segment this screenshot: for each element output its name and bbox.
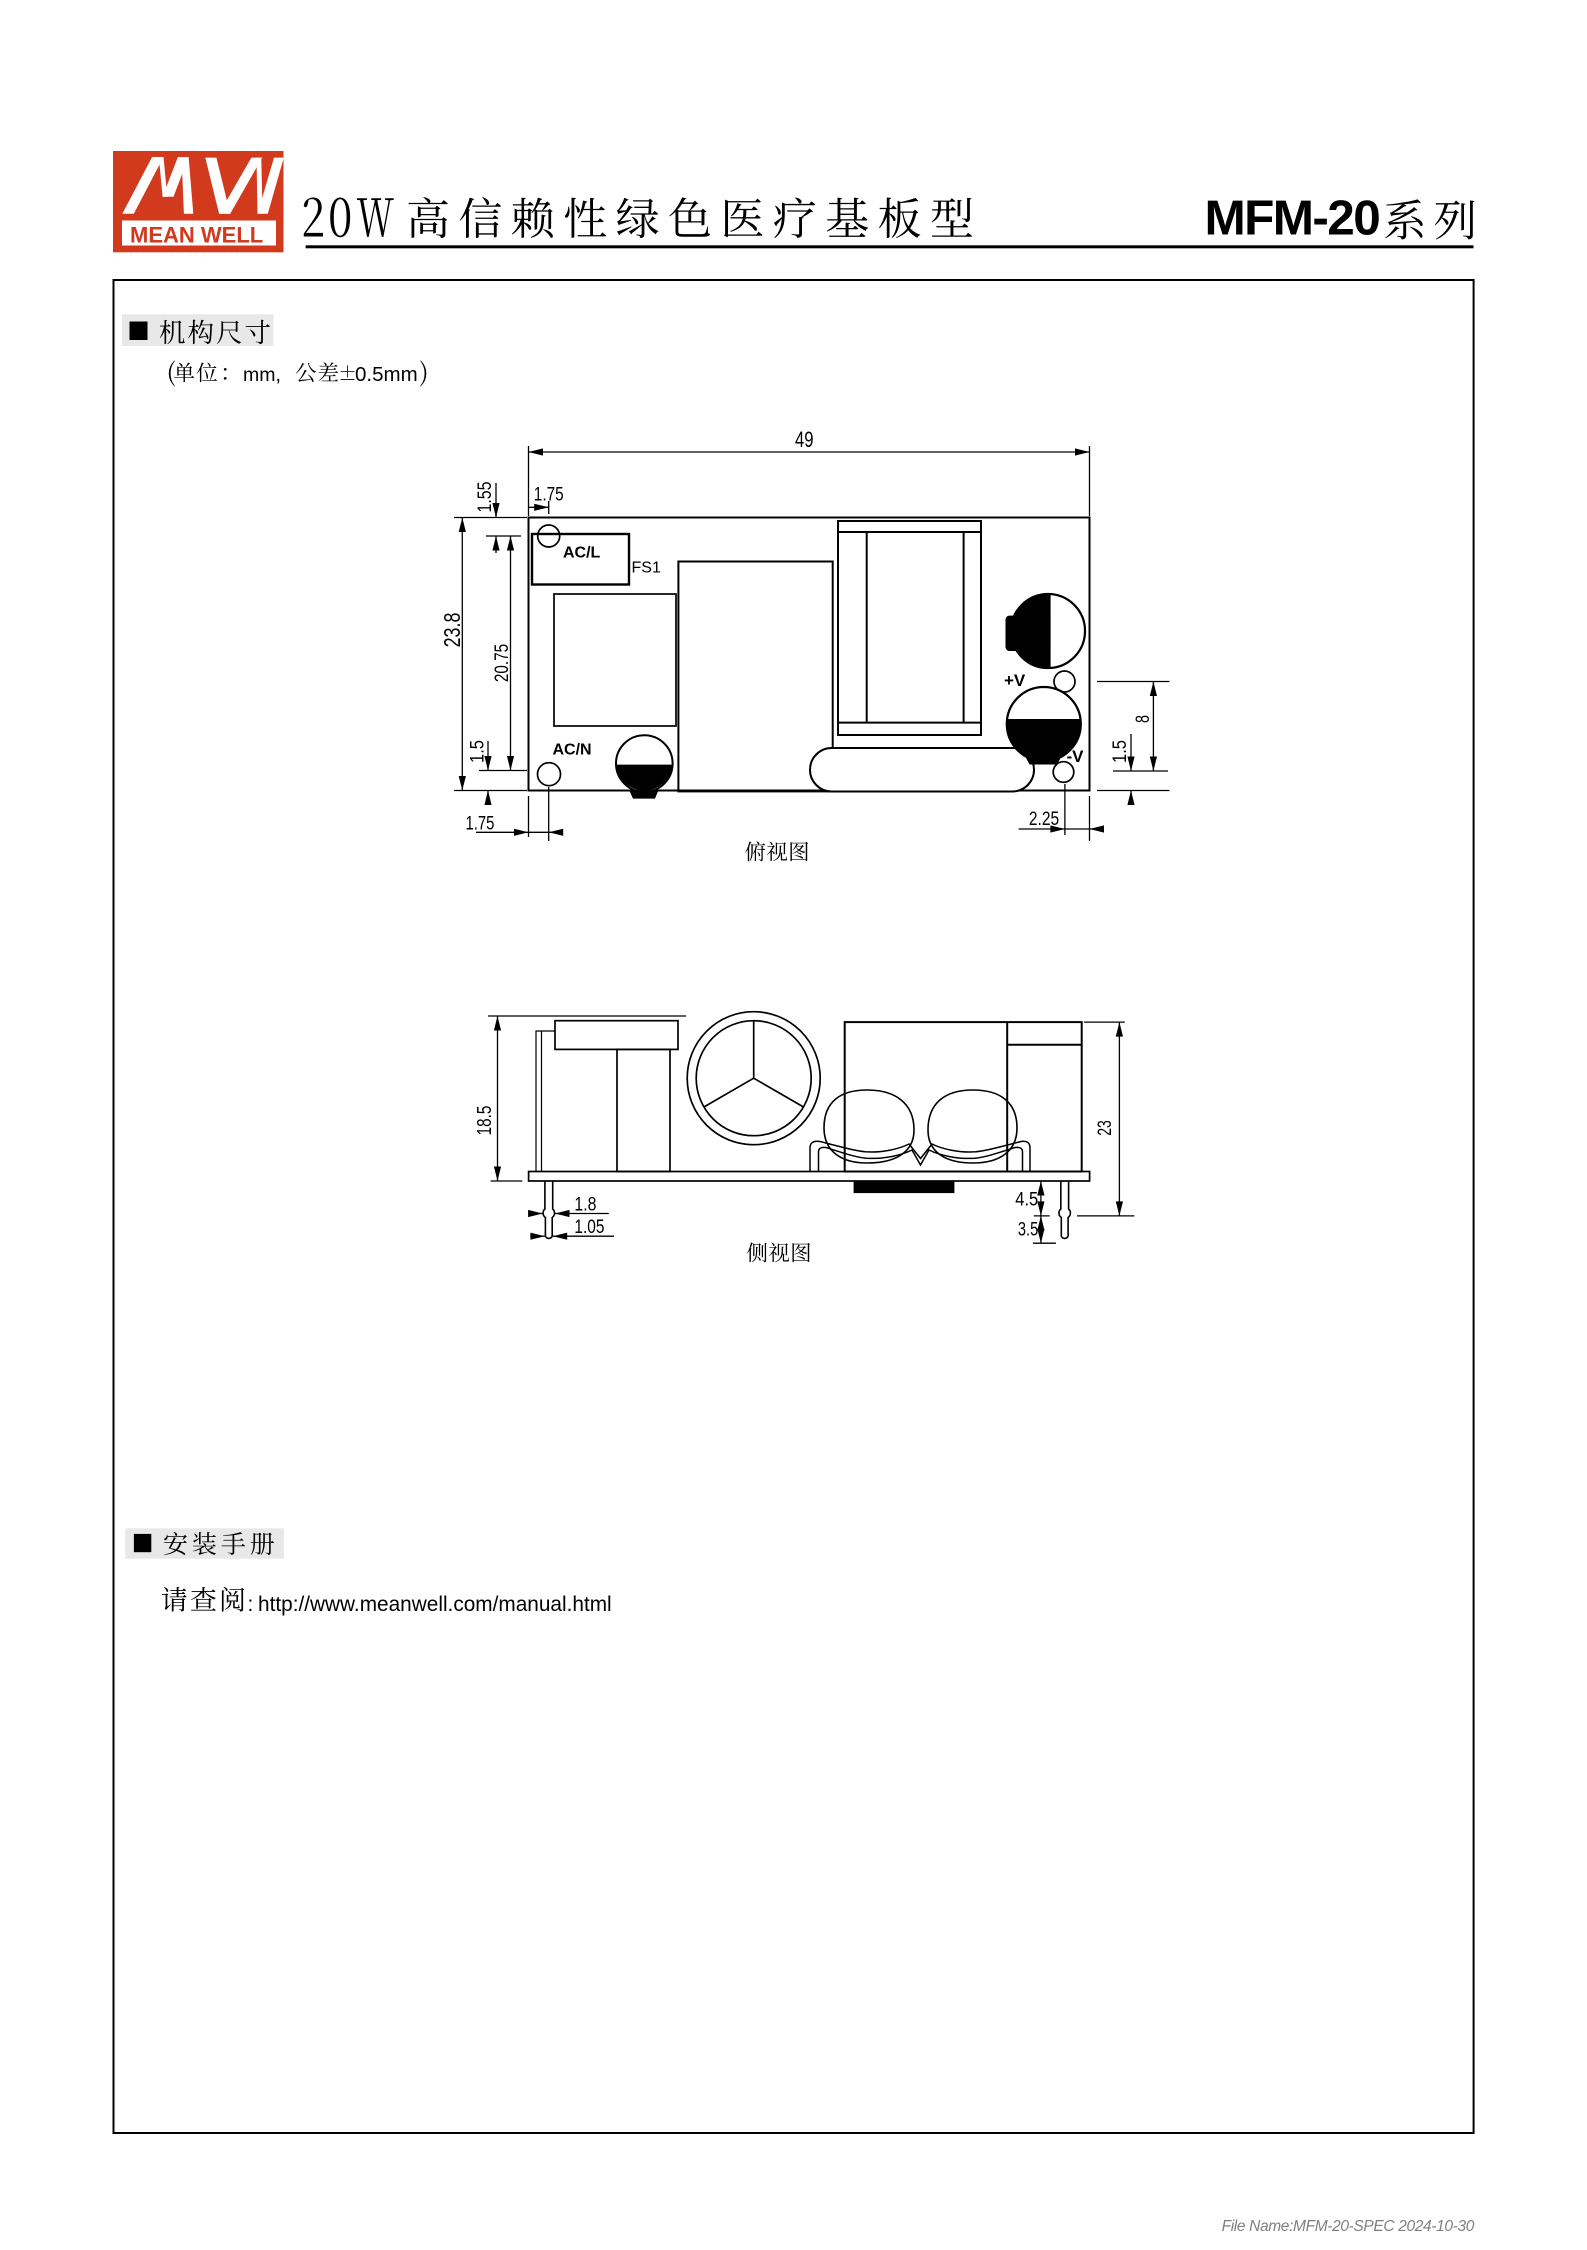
svg-text:MFM-20: MFM-20 bbox=[1205, 191, 1380, 246]
svg-text:AC/L: AC/L bbox=[563, 545, 601, 562]
svg-text:23.8: 23.8 bbox=[439, 613, 465, 648]
svg-text:File Name:MFM-20-SPEC 2024-10: File Name:MFM-20-SPEC 2024-10-30 bbox=[1222, 2218, 1475, 2235]
svg-text:20.75: 20.75 bbox=[491, 644, 513, 682]
svg-text:4.5: 4.5 bbox=[1015, 1188, 1038, 1210]
svg-text:mm,: mm, bbox=[243, 364, 281, 386]
svg-text:+V: +V bbox=[1004, 671, 1026, 690]
svg-text:2.25: 2.25 bbox=[1029, 808, 1059, 830]
svg-text:23: 23 bbox=[1095, 1120, 1116, 1136]
svg-text:MEAN WELL: MEAN WELL bbox=[130, 223, 263, 248]
svg-text:1.8: 1.8 bbox=[574, 1193, 596, 1215]
svg-text:http://www.meanwell.com/manual: http://www.meanwell.com/manual.html bbox=[258, 1593, 612, 1616]
svg-text:1.75: 1.75 bbox=[534, 484, 564, 506]
svg-text:49: 49 bbox=[795, 427, 814, 452]
svg-text:-V: -V bbox=[1067, 747, 1085, 766]
svg-text:3.5: 3.5 bbox=[1018, 1218, 1038, 1240]
svg-text:8: 8 bbox=[1132, 715, 1154, 723]
svg-text:18.5: 18.5 bbox=[474, 1106, 496, 1136]
svg-text::: : bbox=[248, 1593, 254, 1616]
svg-text:1.75: 1.75 bbox=[466, 812, 495, 834]
svg-text:1.5: 1.5 bbox=[1109, 740, 1131, 763]
svg-text:0.5mm: 0.5mm bbox=[355, 363, 418, 386]
svg-text:AC/N: AC/N bbox=[553, 742, 592, 759]
svg-text:1.5: 1.5 bbox=[467, 740, 489, 763]
svg-text:FS1: FS1 bbox=[632, 560, 661, 577]
svg-text:1.05: 1.05 bbox=[574, 1216, 604, 1238]
svg-text:1.55: 1.55 bbox=[474, 481, 496, 512]
